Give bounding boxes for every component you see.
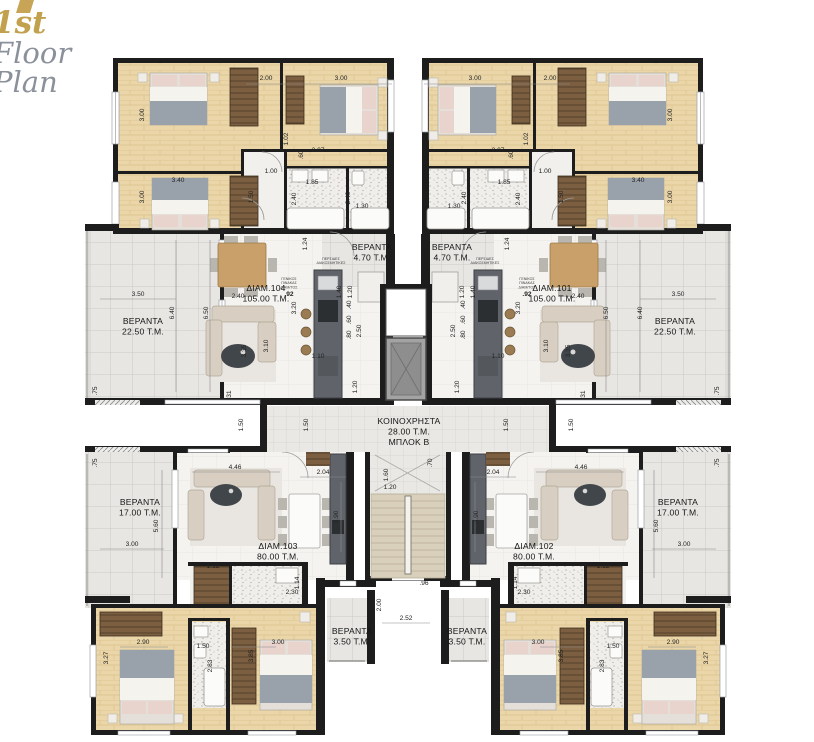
room-label: ΒΕΡΑΝΤΑ — [120, 497, 160, 507]
dimension-label: 1.14 — [294, 576, 301, 589]
dimension-label: 1.20 — [459, 285, 466, 298]
dimension-label: 1.60 — [383, 468, 390, 481]
room-label: 80.00 Τ.Μ. — [257, 552, 299, 562]
dimension-label: 1.50 — [238, 418, 245, 431]
dimension-label: .60 — [508, 150, 515, 159]
dimension-label: .75 — [92, 386, 99, 395]
dimension-label: 1.00 — [539, 168, 552, 175]
dimension-label: 2.30 — [518, 589, 531, 596]
room-label: 3.50 Τ.Μ. — [449, 637, 486, 647]
dimension-label: .31 — [226, 390, 233, 399]
dimension-label: 1.20 — [347, 285, 354, 298]
room-label: ΒΕΡΑΝΤΑ — [352, 242, 392, 252]
dimension-label: 1.24 — [504, 237, 511, 250]
room-label: 105.00 Τ.Μ. — [243, 294, 290, 304]
room-label: 17.00 Τ.Μ. — [119, 508, 161, 518]
dimension-label: 2.00 — [544, 75, 557, 82]
dimension-label: 2.40 — [291, 192, 298, 205]
annotation-label: ΔΙΑΜ/ΤΟΣ — [519, 285, 537, 289]
dimension-label: 1.50 — [503, 418, 510, 431]
dimension-label: 3.00 — [532, 639, 545, 646]
dimension-label: 2.04 — [487, 469, 500, 476]
dimension-label: 3.50 — [132, 291, 145, 298]
room-label: 28.00 Τ.Μ. — [388, 427, 430, 437]
dimension-label: 6.50 — [603, 306, 610, 319]
dimension-label: 1.10 — [492, 353, 505, 360]
dimension-label: 2.90 — [667, 639, 680, 646]
room-label: 17.00 Τ.Μ. — [657, 508, 699, 518]
dimension-label: 1.40 — [336, 285, 343, 298]
dimension-label: 2.83 — [599, 659, 606, 672]
room-label: 3.50 Τ.Μ. — [334, 637, 371, 647]
dimension-label: 3.00 — [667, 190, 674, 203]
dimension-label: 3.35 — [565, 344, 572, 357]
floor-plan-page: 1st Floor Plan — [0, 0, 814, 742]
room-label: ΜΠΛΟΚ Β — [389, 437, 430, 447]
page-title: 1st Floor Plan — [0, 8, 71, 97]
annotation-label: ΔΙΑΜ/ΤΟΣ — [281, 285, 299, 289]
dimension-label: 1.24 — [302, 237, 309, 250]
dimension-label: 3.27 — [703, 651, 710, 664]
dimension-label: 3.40 — [632, 177, 645, 184]
dimension-label: .60 — [460, 315, 467, 324]
dimension-label: 1.85 — [306, 179, 319, 186]
dimension-label: 1.40 — [470, 285, 477, 298]
dimension-label: 3.35 — [241, 344, 248, 357]
dimension-label: 3.00 — [272, 639, 285, 646]
dimension-label: 5.60 — [653, 519, 660, 532]
dimension-label: 1.85 — [498, 179, 511, 186]
room-label: 105.00 Τ.Μ. — [529, 294, 576, 304]
room-label: ΒΕΡΑΝΤΑ — [658, 497, 698, 507]
dimension-label: 2.40 — [461, 191, 468, 204]
dimension-label: 1.12 — [597, 563, 610, 570]
dimension-label: 3.00 — [139, 108, 146, 121]
annotation-label: ΔΙΑΚΟΣΜΗΤΙΚΕΣ — [317, 261, 347, 265]
title-line-1: 1st — [0, 8, 71, 39]
dimension-label: .60 — [298, 150, 305, 159]
dimension-label: 1.50 — [303, 418, 310, 431]
room-label: 22.50 Τ.Μ. — [654, 327, 696, 337]
dimension-label: .75 — [714, 458, 721, 467]
dimension-label: 1.20 — [454, 380, 461, 393]
staircase — [371, 494, 445, 578]
dimension-label: 1.12 — [207, 563, 220, 570]
room-label: 4.70 Τ.Μ. — [434, 253, 471, 263]
dimension-label: 2.40 — [515, 192, 522, 205]
dimension-label: 3.10 — [263, 339, 270, 352]
dimension-label: .40 — [460, 300, 467, 309]
dimension-label: 1.14 — [512, 576, 519, 589]
dimension-label: 2.50 — [356, 324, 363, 337]
dimension-label: 3.40 — [172, 177, 185, 184]
dimension-label: .80 — [460, 330, 467, 339]
dimension-label: 3.00 — [678, 541, 691, 548]
room-label: ΒΕΡΑΝΤΑ — [447, 626, 487, 636]
dimension-label: 3.90 — [473, 510, 480, 523]
title-line-3: Plan — [0, 68, 71, 97]
dimension-label: 6.40 — [637, 306, 644, 319]
dimension-label: .75 — [714, 386, 721, 395]
dimension-label: .40 — [346, 300, 353, 309]
dimension-label: 1.20 — [384, 484, 397, 491]
dimension-label: .96 — [419, 580, 428, 587]
dimension-label: 3.85 — [248, 649, 255, 662]
room-label: 22.50 Τ.Μ. — [122, 327, 164, 337]
dimension-label: 1.10 — [312, 353, 325, 360]
dimension-label: 1.30 — [356, 203, 369, 210]
dimension-label: 4.46 — [575, 464, 588, 471]
dimension-label: 2.07 — [492, 147, 505, 154]
room-label: 4.70 Τ.Μ. — [354, 253, 391, 263]
dimension-label: 3.20 — [515, 301, 522, 314]
dimension-label: .60 — [346, 315, 353, 324]
dimension-label: 2.00 — [260, 75, 273, 82]
dimension-label: 1.50 — [568, 418, 575, 431]
annotation-label: ΔΙΑΚΟΣΜΗΤΙΚΕΣ — [471, 261, 501, 265]
room-label: ΒΕΡΑΝΤΑ — [332, 626, 372, 636]
floor-plan-drawing: 3.003.002.002.003.003.001.021.02.60.602.… — [0, 0, 814, 742]
dimension-label: 3.00 — [139, 190, 146, 203]
dimension-label: .80 — [346, 330, 353, 339]
dimension-label: .70 — [427, 458, 434, 467]
dimension-label: 2.83 — [207, 659, 214, 672]
dimension-label: 3.00 — [126, 541, 139, 548]
room-label: ΔΙΑΜ.103 — [258, 541, 297, 551]
dimension-label: 3.00 — [469, 75, 482, 82]
dimension-label: 2.90 — [137, 639, 150, 646]
room-label: ΚΟΙΝΟΧΡΗΣΤΑ — [378, 416, 441, 426]
dimension-label: 3.10 — [543, 339, 550, 352]
dimension-label: 1.50 — [558, 190, 565, 203]
dimension-label: .31 — [580, 390, 587, 399]
elevator — [380, 284, 432, 403]
room-label: 80.00 Τ.Μ. — [513, 552, 555, 562]
room-label: ΔΙΑΜ.101 — [532, 283, 571, 293]
dimension-label: 5.60 — [153, 519, 160, 532]
dimension-label: 2.04 — [317, 469, 330, 476]
dimension-label: 2.50 — [450, 324, 457, 337]
dimension-label: 3.00 — [667, 108, 674, 121]
dimension-label: 3.50 — [672, 291, 685, 298]
dimension-label: 3.27 — [103, 651, 110, 664]
room-label: ΒΕΡΑΝΤΑ — [655, 316, 695, 326]
dimension-label: 4.46 — [229, 464, 242, 471]
dimension-label: 1.50 — [197, 643, 210, 650]
dimension-label: 6.40 — [169, 306, 176, 319]
dimension-label: 3.90 — [333, 510, 340, 523]
dimension-label: 1.50 — [248, 190, 255, 203]
room-label: ΔΙΑΜ.102 — [514, 541, 553, 551]
room-label: ΒΕΡΑΝΤΑ — [432, 242, 472, 252]
dimension-label: 2.07 — [312, 147, 325, 154]
dimension-label: 3.00 — [335, 75, 348, 82]
dimension-label: 2.00 — [376, 598, 383, 611]
dimension-label: 1.20 — [352, 380, 359, 393]
dimension-label: 1.02 — [523, 132, 530, 145]
dimension-label: 2.52 — [400, 615, 413, 622]
dimension-label: 6.50 — [203, 306, 210, 319]
title-line-2: Floor — [0, 39, 71, 68]
dimension-label: 1.00 — [265, 168, 278, 175]
room-label: ΒΕΡΑΝΤΑ — [123, 316, 163, 326]
dimension-label: 1.50 — [607, 643, 620, 650]
dimension-label: .75 — [92, 458, 99, 467]
dimension-label: 1.30 — [448, 203, 461, 210]
dimension-label: 3.85 — [558, 649, 565, 662]
dimension-label: 2.40 — [345, 191, 352, 204]
dimension-label: 3.20 — [291, 301, 298, 314]
dimension-label: 1.02 — [283, 132, 290, 145]
